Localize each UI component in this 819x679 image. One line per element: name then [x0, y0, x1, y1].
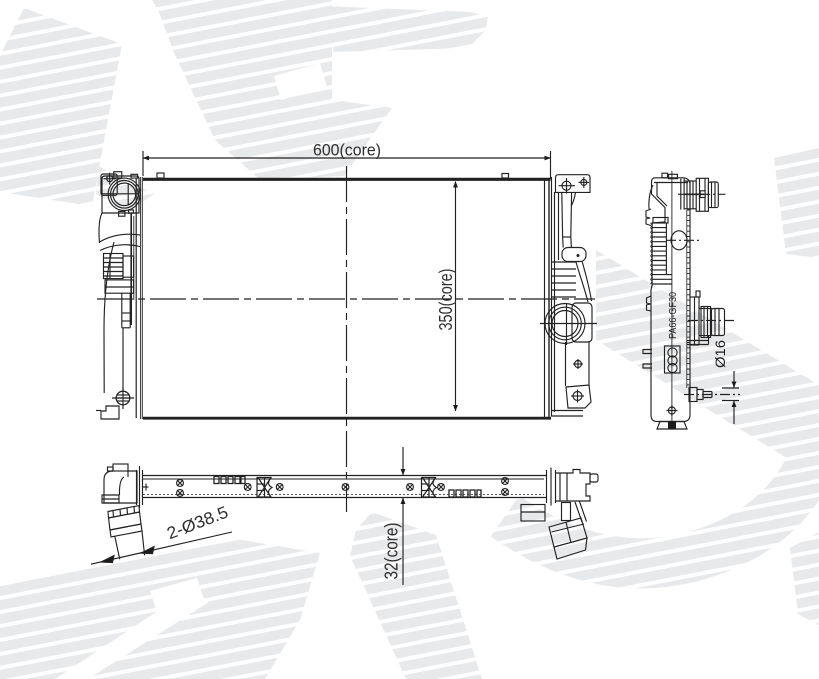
svg-text:32(core): 32(core): [382, 523, 402, 580]
svg-text:600(core): 600(core): [313, 141, 381, 160]
svg-text:Ø16: Ø16: [712, 340, 728, 368]
svg-text:PA66-GF30: PA66-GF30: [668, 292, 679, 339]
svg-text:2-Ø38.5: 2-Ø38.5: [164, 503, 231, 544]
